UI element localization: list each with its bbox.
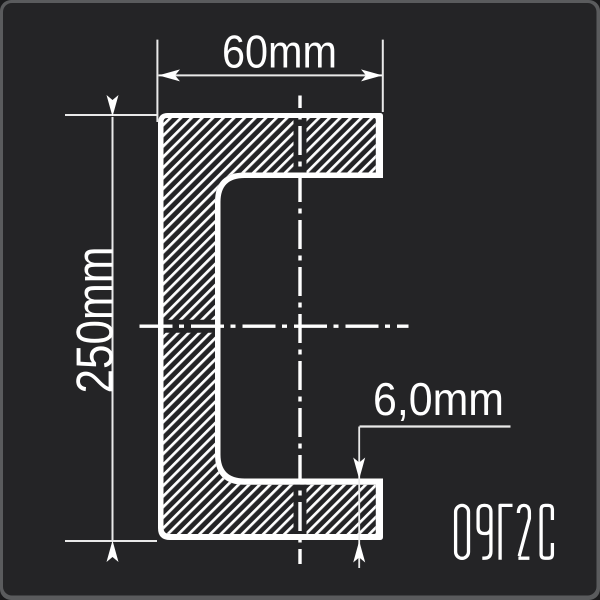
svg-text:250mm: 250mm bbox=[67, 247, 125, 394]
svg-text:60mm: 60mm bbox=[222, 25, 337, 77]
svg-text:6,0mm: 6,0mm bbox=[373, 373, 504, 425]
